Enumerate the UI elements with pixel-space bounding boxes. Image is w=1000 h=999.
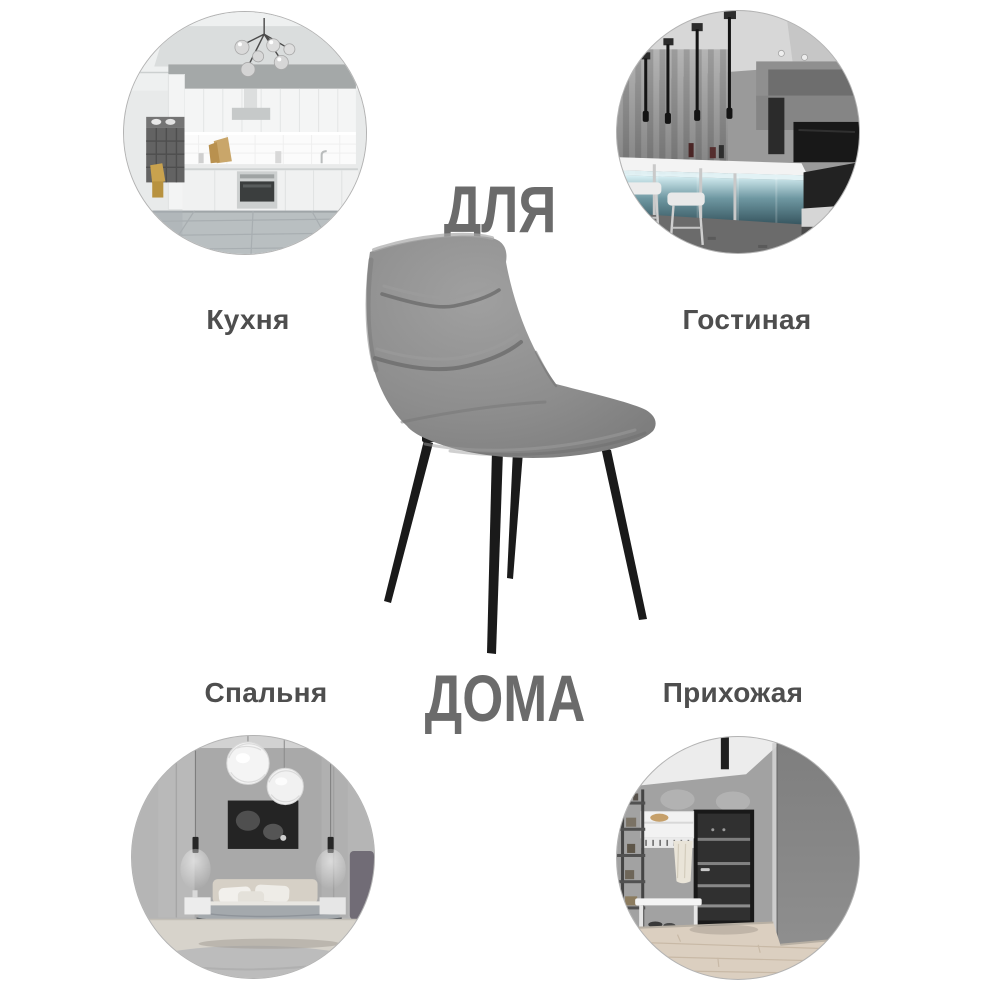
rug bbox=[138, 946, 368, 978]
sphere-pendant-lamp bbox=[267, 768, 303, 804]
heading-doma: ДОМА bbox=[425, 665, 586, 731]
kitchen-label: Кухня bbox=[206, 303, 289, 337]
chair-leg-front-left bbox=[487, 450, 503, 654]
kitchen-photo bbox=[123, 11, 367, 255]
living-room-label: Гостиная bbox=[683, 303, 812, 337]
product-collage: ДЛЯ ДОМА Кухня Гостиная Спальня Прихожая bbox=[0, 0, 1000, 999]
kitchen-scene bbox=[124, 12, 366, 254]
sphere-pendant-lamp bbox=[227, 742, 269, 784]
hallway-scene bbox=[617, 737, 859, 979]
bedroom-photo bbox=[131, 735, 375, 979]
door-handle bbox=[701, 868, 710, 871]
chair-leg-front-right bbox=[601, 447, 647, 620]
range-hood bbox=[232, 108, 270, 120]
hanging-towel bbox=[673, 841, 692, 883]
chair-legs bbox=[384, 432, 647, 654]
bedroom-label: Спальня bbox=[204, 676, 327, 710]
bottle bbox=[719, 145, 724, 158]
living-room-scene bbox=[617, 11, 859, 253]
bottle bbox=[710, 147, 716, 158]
kitchen-upper-cabinets bbox=[185, 89, 356, 132]
chair-leg-rear-left bbox=[384, 440, 433, 603]
wall-artwork bbox=[228, 801, 299, 849]
hat bbox=[650, 814, 668, 822]
hallway-photo bbox=[616, 736, 860, 980]
bottle bbox=[689, 143, 694, 157]
track-light bbox=[721, 737, 729, 769]
product-chair-image bbox=[340, 230, 680, 670]
entry-door bbox=[694, 810, 755, 925]
nightstand bbox=[320, 897, 346, 914]
oven bbox=[237, 171, 277, 208]
tv-screen bbox=[793, 122, 859, 162]
accent-chair bbox=[350, 851, 374, 920]
living-room-photo bbox=[616, 10, 860, 254]
hallway-label: Прихожая bbox=[663, 676, 804, 710]
nightstand bbox=[184, 897, 210, 914]
bedroom-scene bbox=[132, 736, 374, 978]
chair-leg-rear-right bbox=[507, 450, 523, 579]
